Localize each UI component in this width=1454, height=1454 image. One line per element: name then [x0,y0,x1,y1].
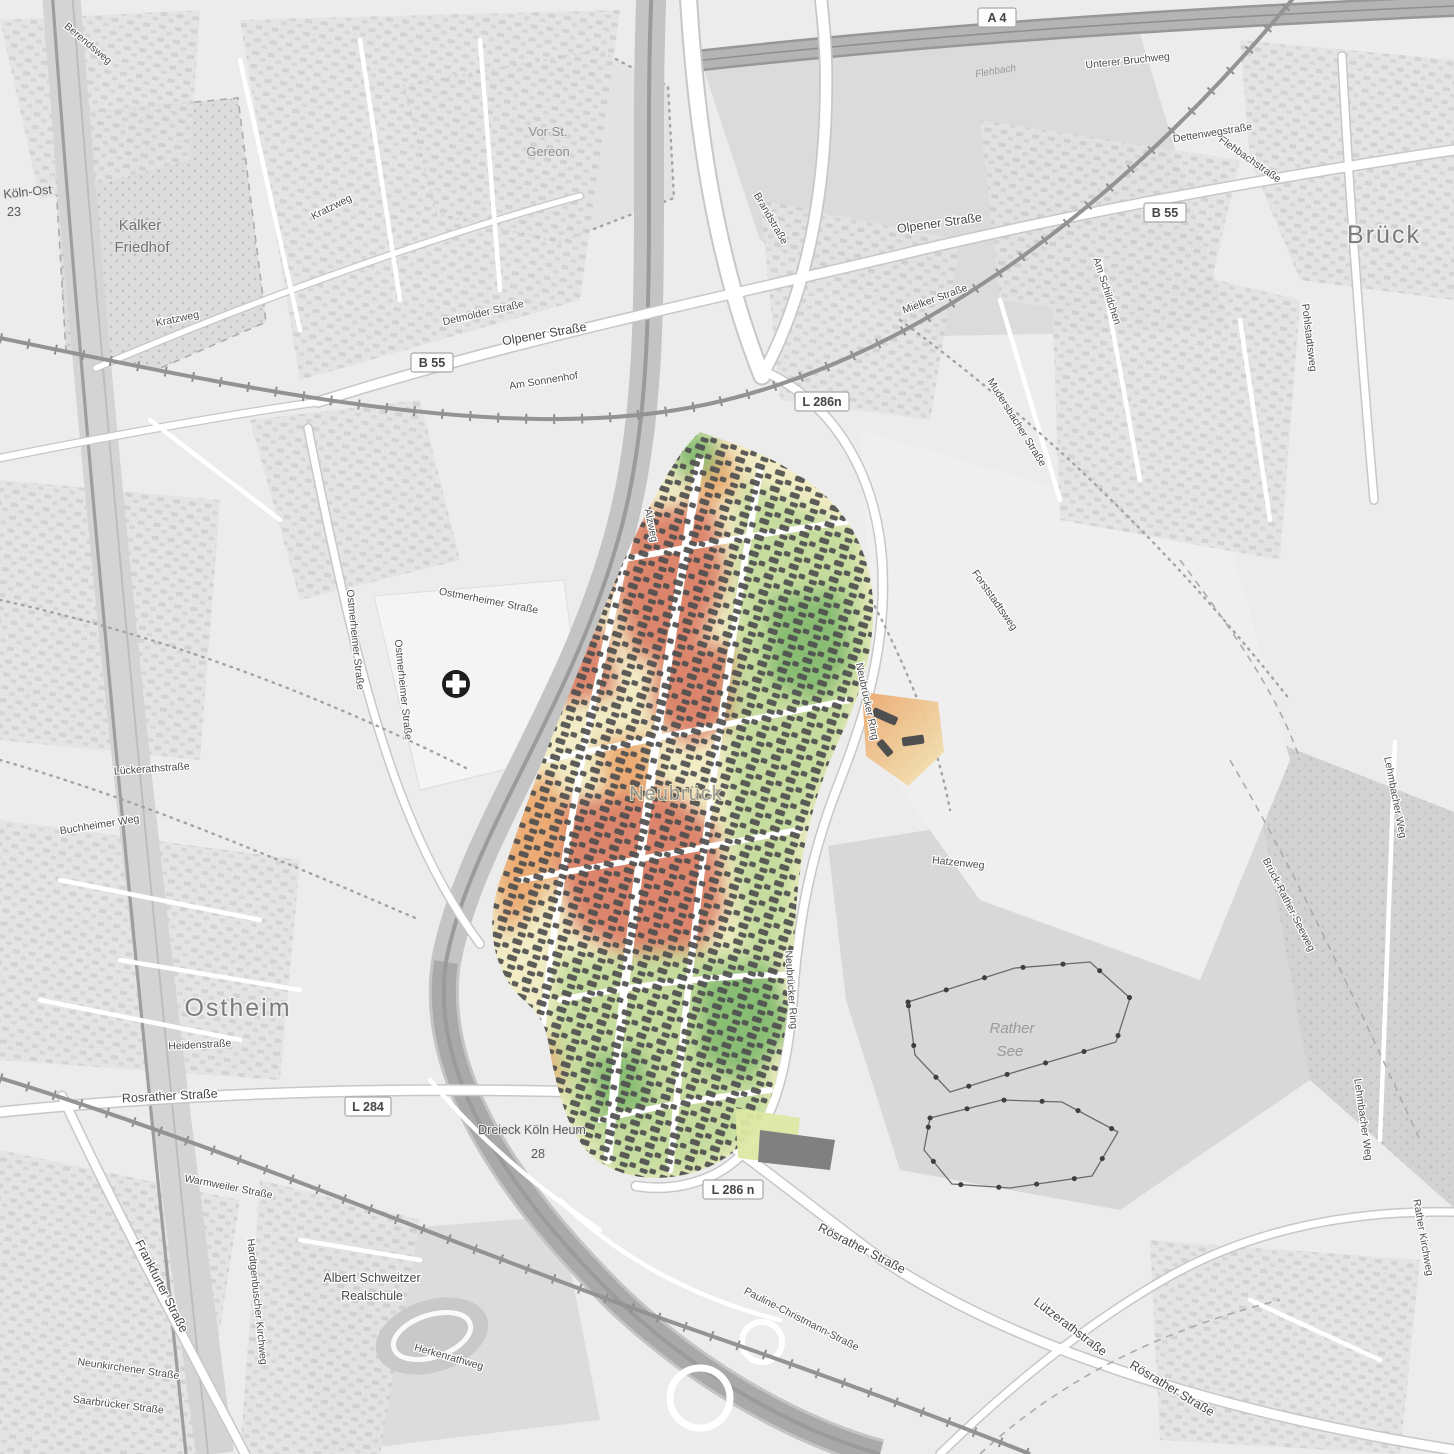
hospital-icon [442,670,470,698]
exit-koeln-ost-number: 23 [7,205,21,219]
place-label-brueck: Brück [1347,221,1421,249]
badge-l286n-north-label: L 286n [802,395,841,409]
place-label-neubrueck: Neubrück [629,783,723,805]
badge-a4: A 4 [978,8,1016,27]
gereon-label-line2: Gereon [526,144,569,159]
cemetery-label-line1: Kalker [119,217,162,234]
basemap-svg: A 4 B 55 B 55 L 286n L 284 L 286 n Brück… [0,0,1454,1454]
badge-l286n-south-label: L 286 n [712,1183,755,1197]
junction-dreieck-number: 28 [531,1147,545,1161]
badge-l284-label: L 284 [352,1100,384,1114]
cemetery-label-line2: Friedhof [114,239,170,256]
badge-b55-west-label: B 55 [419,356,445,370]
badge-b55-west: B 55 [411,353,453,372]
map-canvas[interactable]: A 4 B 55 B 55 L 286n L 284 L 286 n Brück… [0,0,1454,1454]
badge-l286n-south: L 286 n [703,1180,763,1199]
lake-label-line1: Rather [989,1020,1035,1037]
badge-b55-east-label: B 55 [1152,206,1178,220]
lake-label-line2: See [997,1043,1024,1060]
junction-dreieck-label: Dreieck Köln Heum [478,1123,586,1137]
gereon-label-line1: Vor St. [528,124,567,139]
school-label-line2: Realschule [341,1289,403,1303]
school-label-line1: Albert Schweitzer [323,1271,420,1285]
badge-a4-label: A 4 [988,11,1007,25]
badge-b55-east: B 55 [1144,203,1186,222]
badge-l286n-north: L 286n [795,392,849,411]
badge-l284: L 284 [345,1097,391,1116]
place-label-ostheim: Ostheim [184,994,291,1022]
